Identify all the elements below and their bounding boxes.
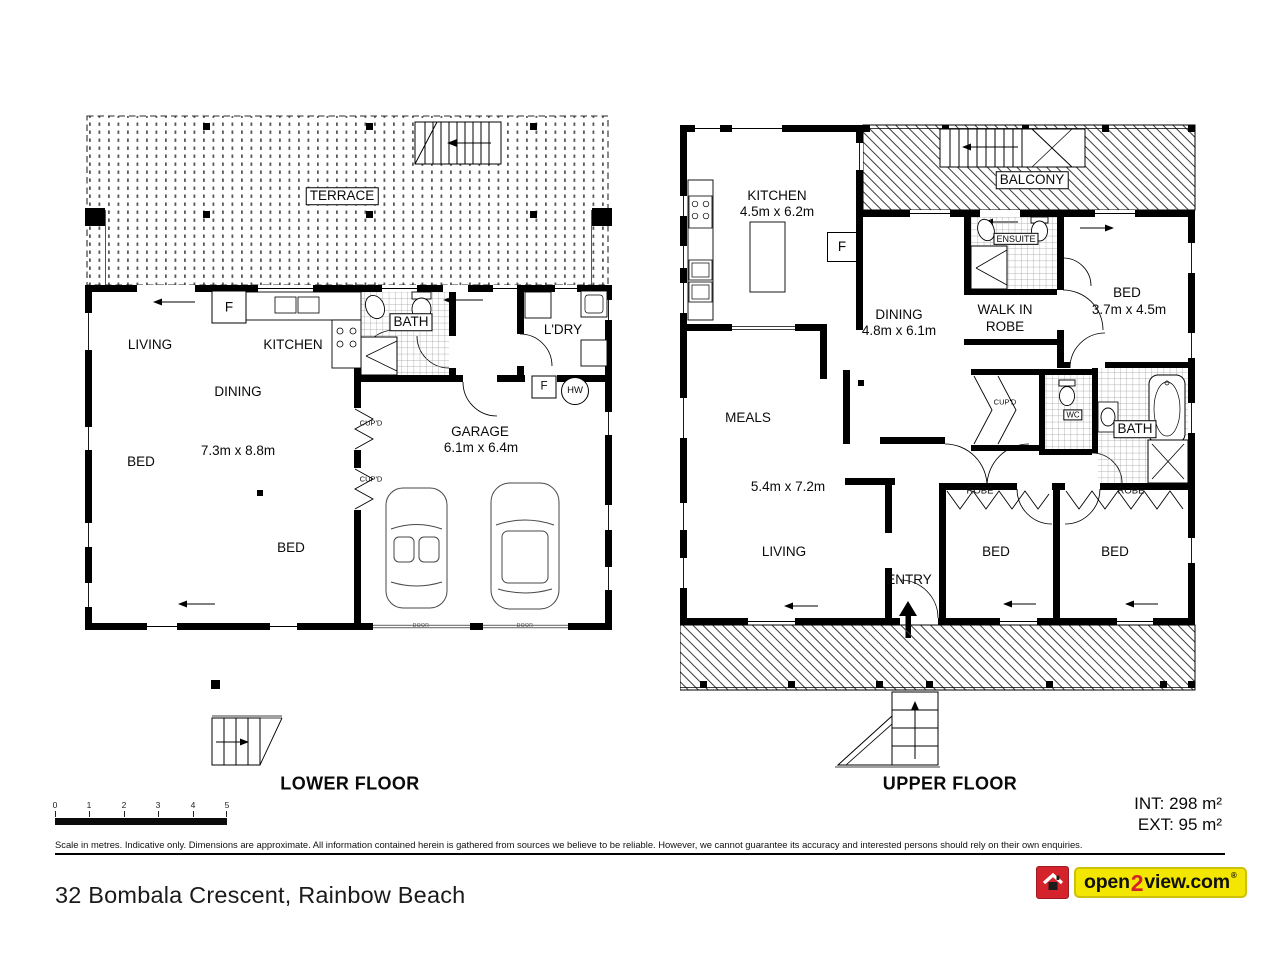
logo-text-open: open xyxy=(1084,871,1130,894)
floor-plan-page: TERRACE LIVING KITCHEN DINING 7.3m x 8.8… xyxy=(0,0,1280,960)
upper-floor-title: UPPER FLOOR xyxy=(883,774,1017,795)
disclaimer-text: Scale in metres. Indicative only. Dimens… xyxy=(55,839,1225,850)
upper-cupboard-label: CUP'D xyxy=(994,399,1017,408)
scale-tick-5: 5 xyxy=(225,800,230,810)
garage-label: GARAGE xyxy=(451,424,509,440)
lower-kitchen-label: KITCHEN xyxy=(263,337,322,353)
master-bed-label: BED xyxy=(1113,285,1141,301)
scale-tick-2: 2 xyxy=(122,800,127,810)
registered-mark: ® xyxy=(1231,871,1237,880)
balcony-stairs xyxy=(940,129,1085,167)
bathroom-fixtures xyxy=(361,292,449,375)
upper-bed-right-label: BED xyxy=(1101,544,1129,560)
post-marker xyxy=(858,380,864,386)
walk-in-robe-label-line1: WALK IN xyxy=(977,302,1032,318)
garage-door-label-1: DOOR xyxy=(413,624,430,630)
meals-label: MEALS xyxy=(725,410,771,426)
open2view-logo: open2view.com® xyxy=(1036,866,1247,899)
walk-in-robe-label-line2: ROBE xyxy=(986,319,1024,335)
scale-tick-1: 1 xyxy=(87,800,92,810)
upper-dining-dimensions: 4.8m x 6.1m xyxy=(862,323,936,339)
lower-dining-label: DINING xyxy=(214,384,261,400)
lower-dimensions-label: 7.3m x 8.8m xyxy=(201,443,275,459)
logo-wordmark: open2view.com® xyxy=(1074,867,1247,898)
laundry-label: L'DRY xyxy=(544,322,582,338)
upper-living-label: LIVING xyxy=(762,544,806,560)
cupboard-label-2: CUP'D xyxy=(360,476,383,485)
hot-water-symbol: HW xyxy=(561,377,589,405)
robe-right-label: ROBE xyxy=(1118,487,1145,498)
footer-divider xyxy=(55,853,1225,855)
lower-bath-label: BATH xyxy=(389,313,432,331)
entry-label: ENTRY xyxy=(886,572,932,588)
master-bed-dimensions: 3.7m x 4.5m xyxy=(1092,302,1166,318)
ensuite-fixtures xyxy=(971,217,1057,289)
house-icon xyxy=(1036,866,1069,899)
post-marker xyxy=(257,490,263,496)
upper-kitchen-label: KITCHEN xyxy=(747,188,806,204)
garage-cars xyxy=(386,483,559,609)
upper-bath-label: BATH xyxy=(1113,420,1156,438)
entry-steps-lower xyxy=(211,680,282,765)
scale-tick-4: 4 xyxy=(191,800,196,810)
robe-mid-label: ROBE xyxy=(967,487,994,498)
lower-floor-plan-graphic xyxy=(85,112,612,772)
terrace-stairs xyxy=(415,122,501,164)
scale-tick-3: 3 xyxy=(156,800,161,810)
upper-living-dimensions: 5.4m x 7.2m xyxy=(751,479,825,495)
scale-bar-rule xyxy=(55,818,227,825)
internal-area: INT: 298 m² xyxy=(1134,793,1222,814)
entry-steps-upper xyxy=(835,692,940,767)
veranda-deck xyxy=(680,625,1195,690)
wc-label: WC xyxy=(1063,409,1082,420)
upper-kitchen-dimensions: 4.5m x 6.2m xyxy=(740,204,814,220)
scale-tick-0: 0 xyxy=(53,800,58,810)
kitchen-fixtures xyxy=(243,292,361,368)
laundry-fridge-box: F xyxy=(532,376,557,399)
garage-dimensions-label: 6.1m x 6.4m xyxy=(444,440,518,456)
ensuite-label: ENSUITE xyxy=(993,233,1038,245)
property-address: 32 Bombala Crescent, Rainbow Beach xyxy=(55,882,465,909)
balcony-label: BALCONY xyxy=(996,171,1069,189)
upper-bed-mid-label: BED xyxy=(982,544,1010,560)
lower-bed-mid-label: BED xyxy=(277,540,305,556)
upper-dining-label: DINING xyxy=(875,307,922,323)
garage-door-label-2: DOOR xyxy=(517,624,534,630)
fridge-box-lower: F xyxy=(212,291,247,324)
cupboard-label-1: CUP'D xyxy=(360,420,383,429)
area-summary: INT: 298 m² EXT: 95 m² xyxy=(1134,793,1222,835)
logo-text-view: view.com xyxy=(1144,871,1229,894)
fridge-box-upper: F xyxy=(827,232,857,262)
external-area: EXT: 95 m² xyxy=(1134,814,1222,835)
lower-living-label: LIVING xyxy=(128,337,172,353)
lower-floor-title: LOWER FLOOR xyxy=(280,774,419,795)
terrace-label: TERRACE xyxy=(306,187,379,205)
logo-text-2: 2 xyxy=(1131,870,1144,897)
lower-bed-left-label: BED xyxy=(127,454,155,470)
